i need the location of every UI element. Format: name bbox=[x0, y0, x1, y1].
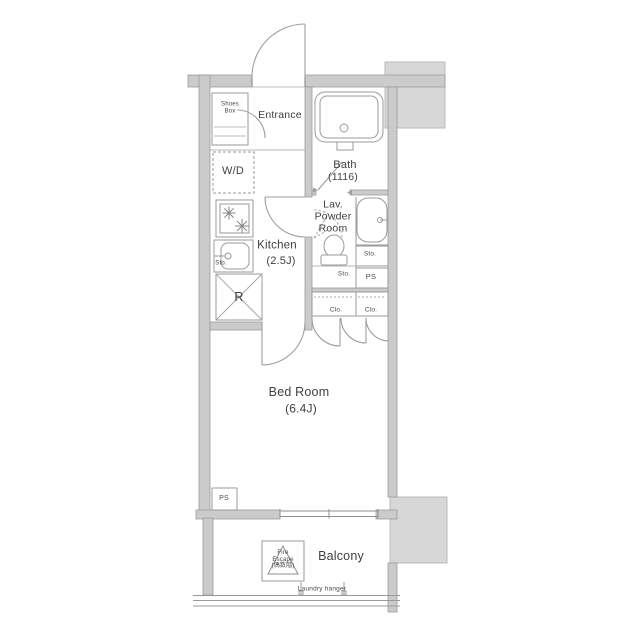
stove-counter bbox=[216, 200, 253, 237]
wall-balcony-right bbox=[388, 563, 397, 612]
balcony-railing bbox=[193, 596, 400, 607]
shoes-box-label: Shoes Box bbox=[221, 101, 239, 114]
laundry-hanger-label: Laundry hanger bbox=[298, 585, 346, 592]
lav-powder-room-label: Lav. Powder Room bbox=[315, 199, 352, 234]
fire-escape-label: Fire Escape (偶数階) bbox=[272, 550, 295, 570]
bathtub-icon bbox=[315, 92, 383, 142]
bedroom-size-label: (6.4J) bbox=[285, 402, 317, 415]
wall-kitchen-bedroom bbox=[210, 322, 262, 330]
pipe-space-label: PS bbox=[366, 273, 376, 281]
bedroom-label: Bed Room bbox=[269, 385, 330, 399]
toilet-icon bbox=[324, 235, 344, 257]
pipe-space-bottom-label: PS bbox=[219, 495, 229, 503]
wall-bath-lav bbox=[350, 190, 388, 195]
kitchen-label: Kitchen bbox=[257, 240, 297, 253]
entrance-door-swing-icon bbox=[252, 24, 305, 77]
storage-label-sink: Sto. bbox=[215, 261, 226, 268]
wall-top-right bbox=[305, 75, 445, 87]
bedroom-door-swing-icon bbox=[262, 322, 305, 365]
bath-size-label: (1116) bbox=[328, 172, 358, 184]
bath-fixtures bbox=[315, 92, 383, 150]
stove-burner-icon bbox=[223, 207, 236, 220]
wall-right bbox=[388, 87, 397, 497]
floorplan-drawing bbox=[0, 0, 640, 640]
wall-corridor-lower bbox=[305, 237, 312, 330]
wall-lav-closet bbox=[312, 288, 388, 292]
balcony-window bbox=[280, 509, 378, 519]
washer-dryer-label: W/D bbox=[222, 165, 244, 177]
closet-label-right: Clo. bbox=[365, 306, 377, 313]
wall-corridor-upper bbox=[305, 87, 312, 197]
storage-label-toilet: Sto. bbox=[338, 270, 350, 277]
wall-balcony-right-segment bbox=[376, 510, 397, 519]
toilet-tank bbox=[321, 255, 347, 265]
closet-door-swing-icon bbox=[312, 318, 389, 346]
bath-label: Bath bbox=[333, 159, 356, 171]
kitchen-size-label: (2.5J) bbox=[266, 255, 295, 267]
stove-burner-icon bbox=[235, 219, 249, 233]
refrigerator-label: R bbox=[234, 290, 243, 304]
balcony-label: Balcony bbox=[318, 549, 364, 563]
wall-balcony-left bbox=[203, 518, 213, 595]
neighbor-block-bottom-right bbox=[390, 497, 447, 563]
hall-door-swing-icon bbox=[265, 197, 305, 237]
closet-label-left: Clo. bbox=[330, 306, 342, 313]
bath-step bbox=[337, 142, 353, 150]
floorplan-canvas: Shoes Box Entrance W/D Bath (1116) Lav. … bbox=[0, 0, 640, 640]
wall-top-left bbox=[188, 75, 252, 87]
storage-label-right: Sto. bbox=[364, 250, 376, 257]
entrance-label: Entrance bbox=[258, 110, 302, 122]
wall-left bbox=[199, 75, 210, 518]
